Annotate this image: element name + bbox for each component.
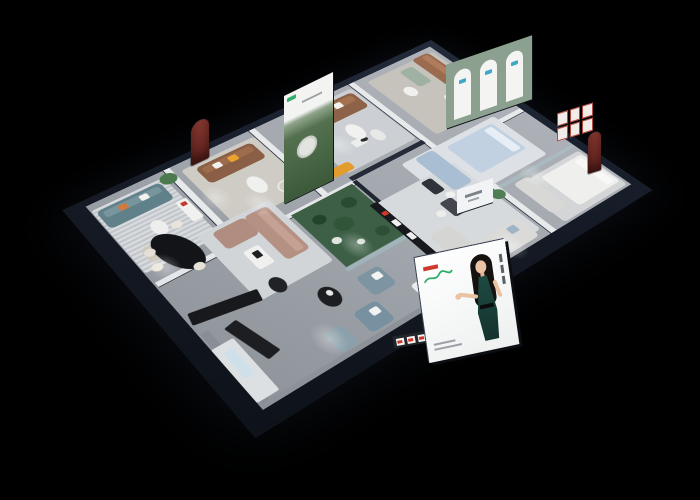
poster-brand-logo <box>287 94 296 102</box>
logo-card <box>396 337 405 345</box>
picture-frame <box>582 102 593 118</box>
red-arch-niche <box>588 130 601 174</box>
logo-card <box>407 335 416 343</box>
sign-text-bar <box>468 197 479 203</box>
arch-window <box>454 66 471 120</box>
picture-frame <box>570 106 581 122</box>
advertising-lightbox <box>415 239 520 363</box>
sign-text-bar <box>465 190 482 199</box>
arch-logo-mark <box>511 60 518 66</box>
arch-logo-mark <box>459 78 466 84</box>
arch-window <box>480 57 497 111</box>
arch-window <box>506 48 523 102</box>
picture-frame <box>557 110 568 126</box>
building-floor-plate <box>62 40 652 438</box>
red-arch-niche <box>191 116 209 166</box>
isometric-viewport <box>0 0 700 500</box>
showroom-render-stage <box>0 0 700 500</box>
billboard-model-figure <box>455 248 515 351</box>
model-hand <box>455 293 462 300</box>
poster-text-line <box>302 91 322 103</box>
arch-logo-mark <box>485 69 492 75</box>
round-mirror-decor <box>297 132 317 162</box>
